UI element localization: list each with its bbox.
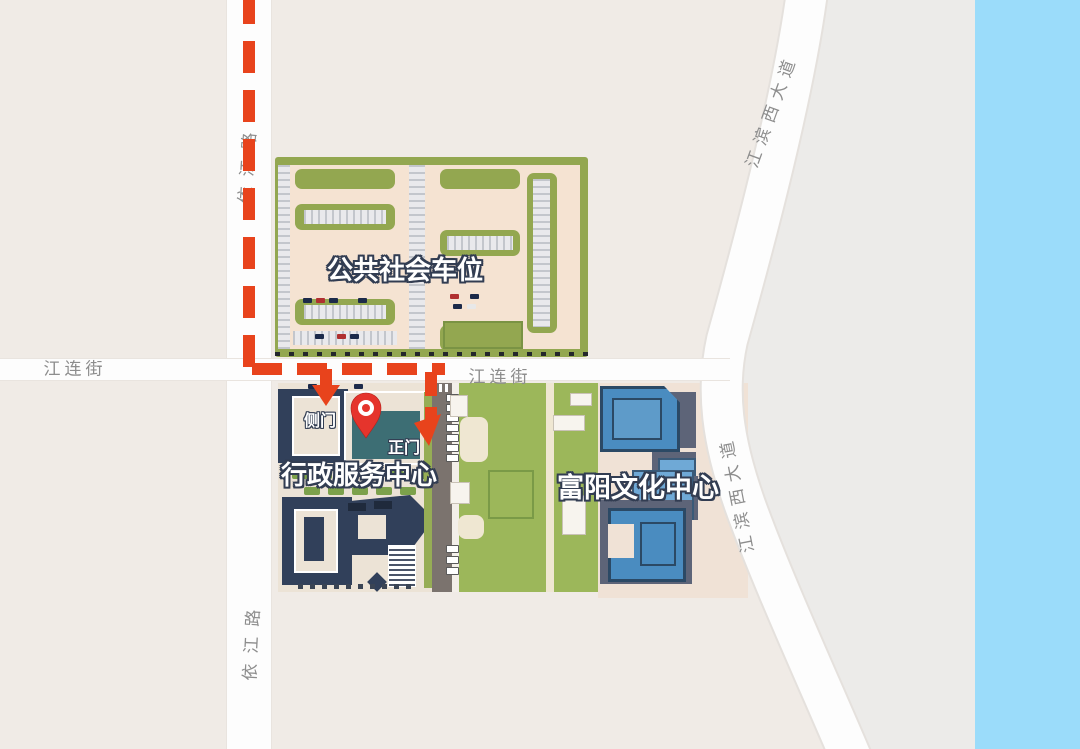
main-gate-label: 正门 (388, 434, 420, 458)
car (350, 334, 359, 339)
cultural-building-south-notch (608, 524, 634, 558)
car (446, 556, 459, 564)
car (446, 444, 459, 452)
south-building-court (358, 515, 386, 539)
parking-boundary-dots (275, 352, 588, 356)
car (358, 298, 367, 303)
car (354, 384, 363, 389)
south-building-windows (374, 501, 392, 509)
lawn-kiosk (450, 482, 470, 504)
admin-terrace-steps (388, 545, 416, 587)
car (467, 304, 476, 309)
campus-boundary-hatch (298, 584, 418, 589)
car (446, 424, 459, 432)
map-canvas: 公共社会车位 (0, 0, 1080, 749)
car (330, 384, 339, 389)
lawn-path-patch (458, 515, 484, 539)
cultural-building-north-core (612, 398, 662, 440)
cultural-center-label: 富阳文化中心 (557, 466, 719, 505)
parking-island (440, 169, 520, 189)
location-pin-icon[interactable] (340, 392, 392, 444)
parking-island (295, 169, 395, 189)
yijiang-road-label-bottom: 依江路 (235, 599, 264, 681)
parking-strip-left (278, 165, 290, 349)
lawn-path-patch (460, 417, 488, 462)
car (308, 384, 317, 389)
car (316, 298, 325, 303)
cultural-building-south-core (640, 522, 676, 566)
car (337, 334, 346, 339)
parking-stall-row (295, 204, 395, 230)
car (315, 334, 324, 339)
parking-strip-right (533, 179, 550, 327)
parking-green-plot (443, 321, 523, 349)
car (303, 298, 312, 303)
car (446, 434, 459, 442)
jianglian-street-label-mid: 江连街 (469, 363, 532, 388)
lawn-pavilion (553, 415, 585, 431)
car (470, 294, 479, 299)
jianglian-street-label-left: 江连街 (44, 355, 107, 380)
admin-center-label: 行政服务中心 (281, 455, 437, 492)
south-building-windows (348, 503, 366, 511)
parking-label: 公共社会车位 (327, 250, 483, 287)
car (446, 454, 459, 462)
west-wing-block (304, 517, 324, 561)
lawn-pavilion (570, 393, 592, 406)
crosswalk (433, 384, 451, 392)
car (450, 294, 459, 299)
lawn-framed-plot (488, 470, 534, 519)
jianglian-street-road (0, 358, 730, 381)
car (329, 298, 338, 303)
river (975, 0, 1080, 749)
car (446, 545, 459, 553)
car (453, 304, 462, 309)
car (446, 567, 459, 575)
lawn-pavilion (450, 395, 468, 417)
side-gate-label: 侧门 (304, 407, 336, 431)
